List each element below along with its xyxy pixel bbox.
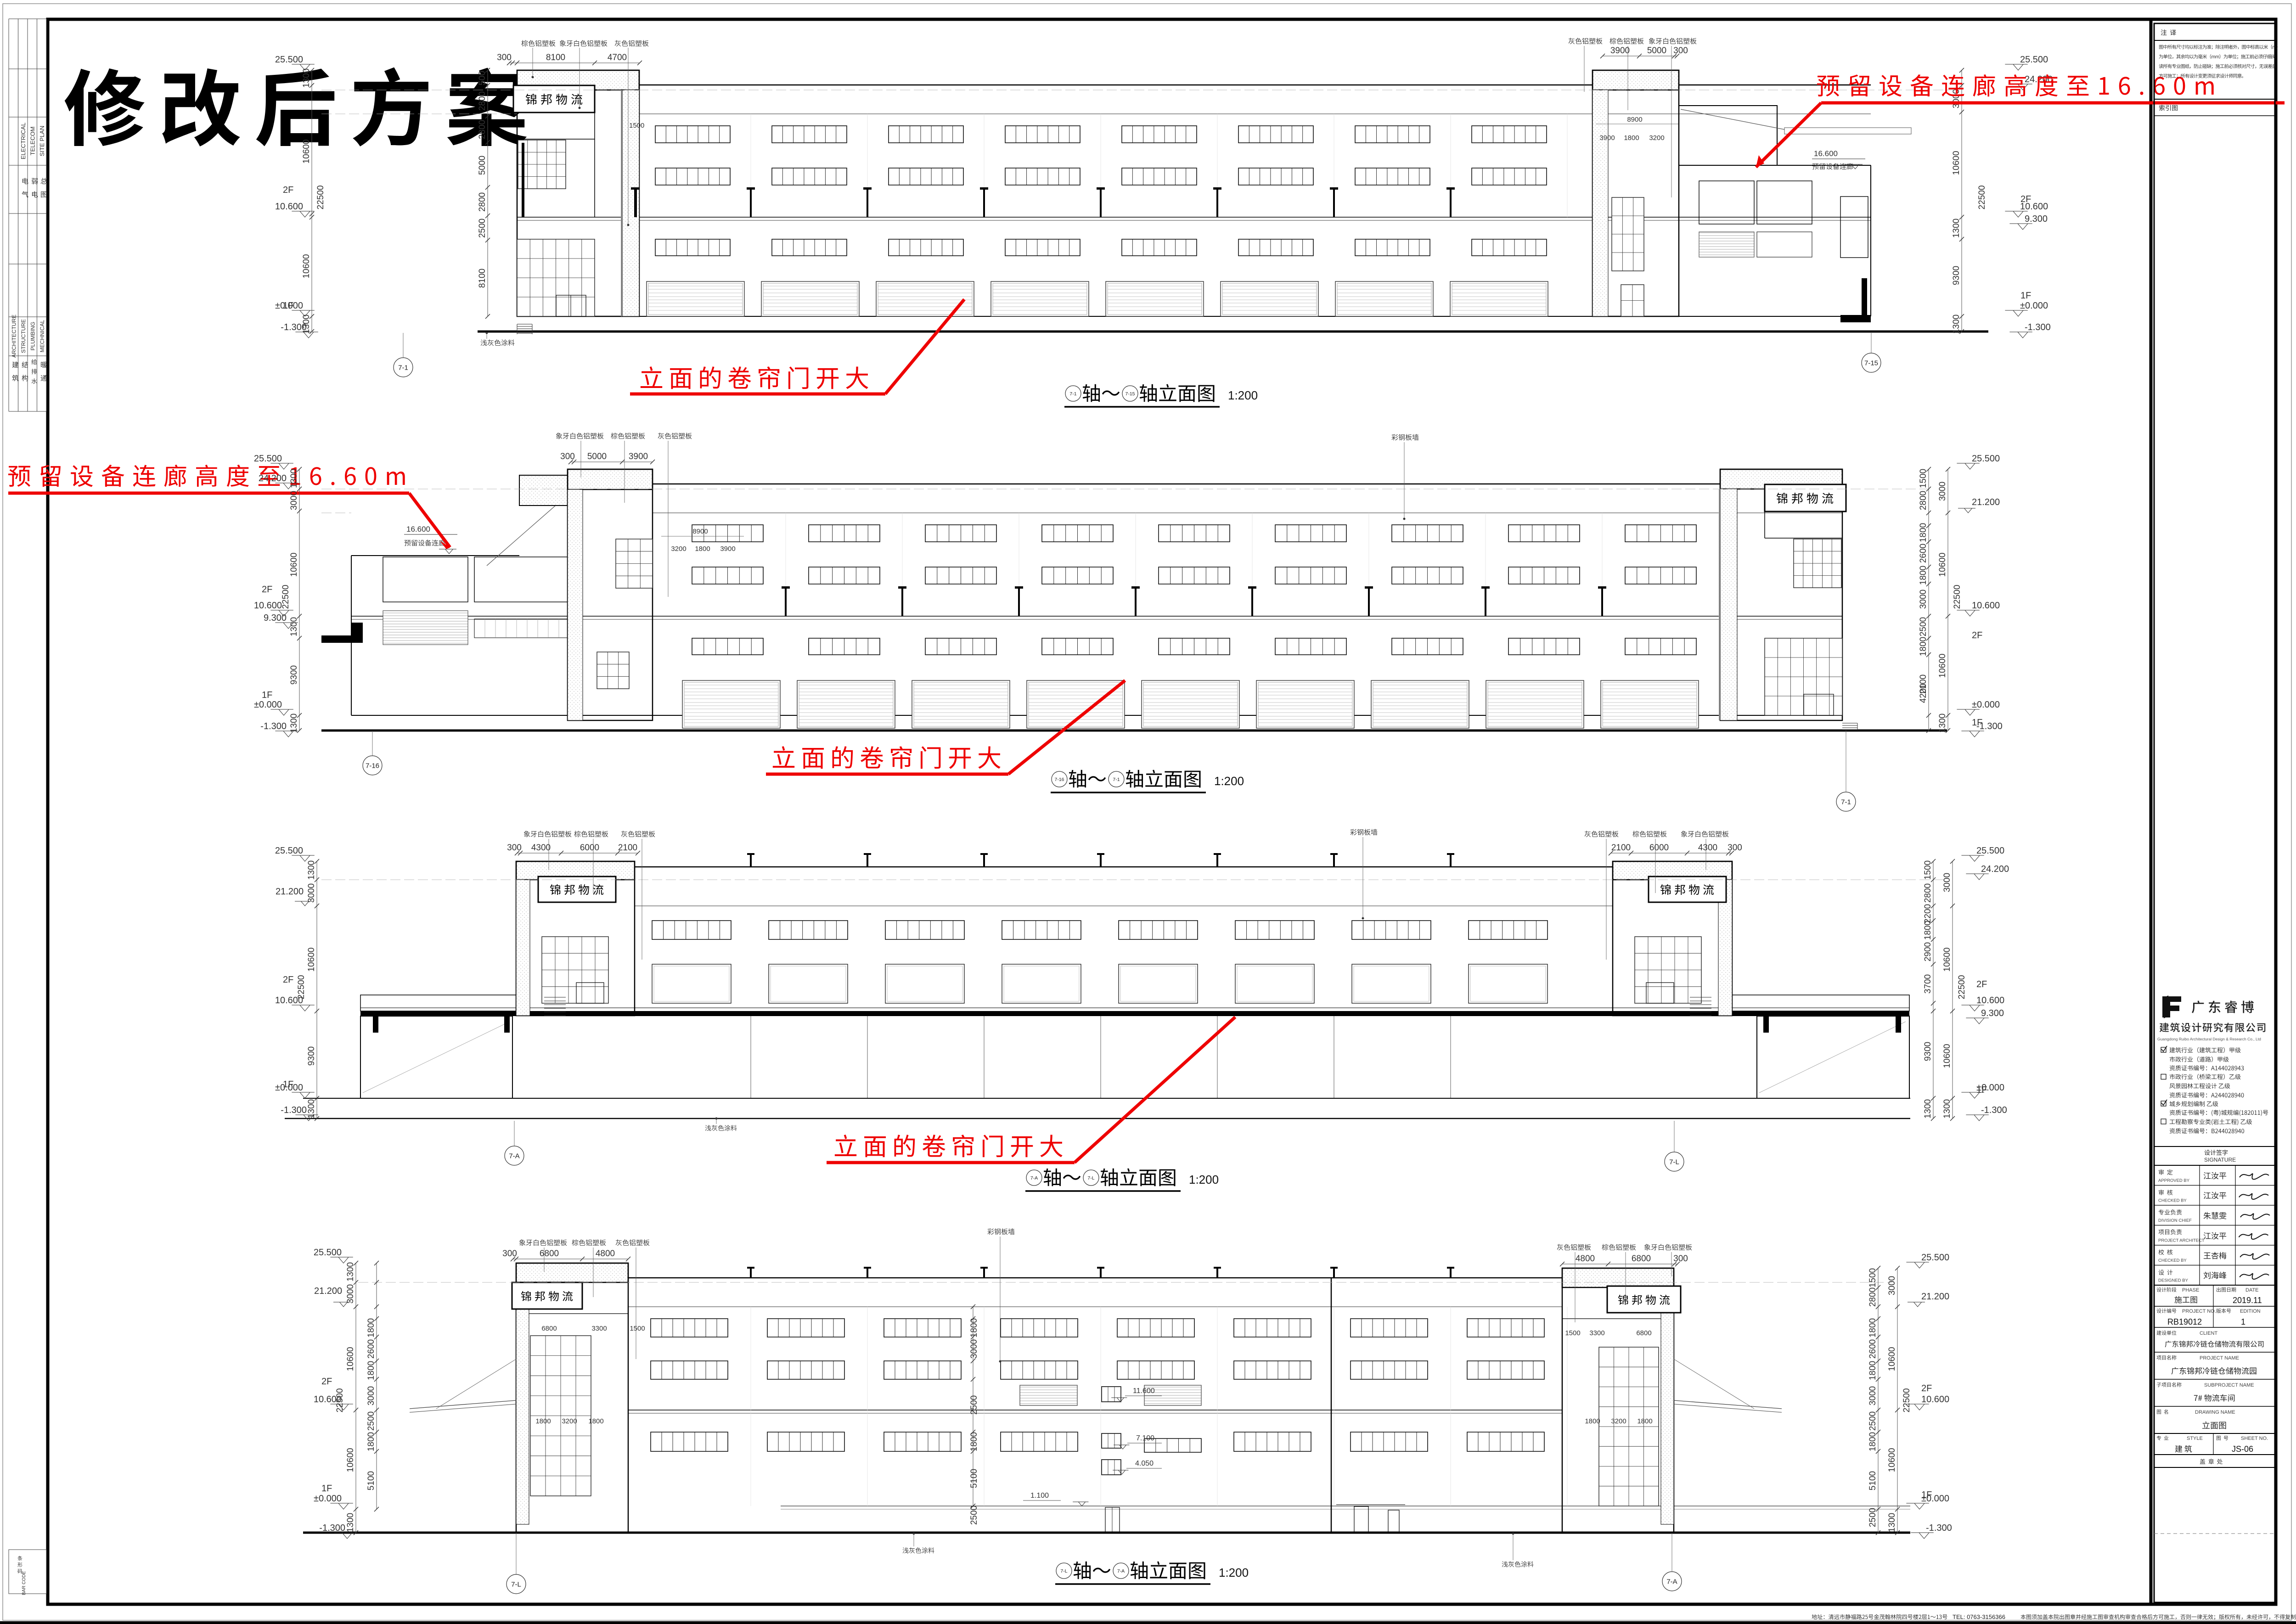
svg-text:SIGNATURE: SIGNATURE xyxy=(2204,1157,2236,1163)
svg-text:MECHNICAL: MECHNICAL xyxy=(39,320,45,352)
svg-text:SUBPROJECT NAME: SUBPROJECT NAME xyxy=(2204,1382,2254,1388)
svg-text:-1.300: -1.300 xyxy=(260,721,287,731)
svg-text:1800: 1800 xyxy=(366,1432,376,1451)
svg-text:7-16: 7-16 xyxy=(1054,777,1064,782)
svg-text:1800: 1800 xyxy=(1624,134,1639,142)
svg-text:10600: 10600 xyxy=(302,140,311,164)
svg-text:300: 300 xyxy=(560,452,575,461)
svg-text:3300: 3300 xyxy=(591,1325,607,1332)
svg-text:7-A: 7-A xyxy=(1117,1568,1125,1574)
svg-text:-1.300: -1.300 xyxy=(281,1105,307,1115)
svg-text:7-1: 7-1 xyxy=(398,364,408,371)
svg-text:-1.300: -1.300 xyxy=(1976,721,2003,731)
svg-text:10600: 10600 xyxy=(1942,948,1952,972)
svg-text:2F: 2F xyxy=(1976,979,1987,989)
svg-text:9300: 9300 xyxy=(289,665,299,685)
svg-text:1800: 1800 xyxy=(695,545,710,553)
svg-text:10600: 10600 xyxy=(1938,553,1947,577)
svg-text:3000: 3000 xyxy=(1919,590,1928,609)
svg-text:2100: 2100 xyxy=(1611,843,1631,853)
svg-text:3000: 3000 xyxy=(307,883,316,903)
svg-text:2800: 2800 xyxy=(1868,1287,1878,1307)
svg-text:EDITION: EDITION xyxy=(2240,1309,2261,1314)
svg-text:1300: 1300 xyxy=(1938,714,1947,733)
svg-text:3900: 3900 xyxy=(720,545,735,553)
svg-text:9.300: 9.300 xyxy=(2025,214,2048,224)
svg-text:2500: 2500 xyxy=(1919,617,1928,636)
svg-text:SHEET NO.: SHEET NO. xyxy=(2241,1436,2268,1441)
svg-text:7-L: 7-L xyxy=(1060,1568,1067,1574)
svg-text:-1.300: -1.300 xyxy=(1981,1105,2007,1115)
svg-text:1:200: 1:200 xyxy=(1189,1173,1219,1186)
svg-text:1800: 1800 xyxy=(1637,1417,1652,1425)
svg-text:5100: 5100 xyxy=(969,1469,979,1488)
svg-text:±0.000: ±0.000 xyxy=(275,301,303,311)
svg-text:±0.000: ±0.000 xyxy=(1921,1494,1949,1504)
svg-text:22500: 22500 xyxy=(1902,1388,1912,1413)
svg-text:25.500: 25.500 xyxy=(2020,55,2048,65)
svg-text:1300: 1300 xyxy=(1952,315,1961,334)
svg-text:300: 300 xyxy=(1728,843,1742,853)
svg-text:1300: 1300 xyxy=(1923,1099,1933,1118)
svg-text:1500: 1500 xyxy=(1923,860,1933,880)
svg-text:1800: 1800 xyxy=(969,1432,979,1451)
svg-text:4800: 4800 xyxy=(1576,1254,1595,1264)
svg-text:ELECTRICAL: ELECTRICAL xyxy=(20,123,27,159)
svg-text:CHECKED BY: CHECKED BY xyxy=(2158,1258,2187,1263)
svg-text:-1.300: -1.300 xyxy=(1926,1523,1952,1533)
svg-text:4300: 4300 xyxy=(531,843,551,853)
svg-text:1:200: 1:200 xyxy=(1214,774,1244,788)
svg-text:25.500: 25.500 xyxy=(275,846,303,856)
svg-text:2100: 2100 xyxy=(618,843,637,853)
svg-text:1300: 1300 xyxy=(1887,1513,1897,1532)
svg-text:3700: 3700 xyxy=(1923,974,1933,994)
svg-text:1300: 1300 xyxy=(289,617,299,636)
svg-text:10600: 10600 xyxy=(346,1347,355,1371)
svg-text:1500: 1500 xyxy=(629,122,644,129)
svg-text:21.200: 21.200 xyxy=(276,887,304,897)
svg-text:3000: 3000 xyxy=(1938,482,1947,501)
svg-text:7-16: 7-16 xyxy=(366,762,379,770)
svg-text:6800: 6800 xyxy=(1632,1254,1651,1264)
svg-text:25.500: 25.500 xyxy=(1921,1253,1949,1263)
svg-text:9300: 9300 xyxy=(1923,1042,1933,1061)
svg-text:2800: 2800 xyxy=(478,91,487,111)
svg-text:±0.000: ±0.000 xyxy=(275,1083,303,1093)
svg-text:3200: 3200 xyxy=(562,1417,577,1425)
svg-text:1300: 1300 xyxy=(1952,219,1961,238)
svg-text:1300: 1300 xyxy=(1942,1099,1952,1118)
svg-text:±0.000: ±0.000 xyxy=(314,1494,342,1504)
svg-text:21.200: 21.200 xyxy=(1972,497,2000,507)
svg-text:2F: 2F xyxy=(1972,630,1982,641)
svg-text:1300: 1300 xyxy=(289,469,299,488)
svg-text:7-L: 7-L xyxy=(1087,1175,1094,1181)
svg-text:4800: 4800 xyxy=(596,1249,615,1259)
svg-text:24.200: 24.200 xyxy=(259,473,287,483)
svg-text:7-A: 7-A xyxy=(1030,1175,1038,1181)
svg-text:4200: 4200 xyxy=(1919,684,1928,703)
svg-text:2500: 2500 xyxy=(478,219,487,238)
svg-text:1300: 1300 xyxy=(346,1262,355,1281)
svg-text:CLIENT: CLIENT xyxy=(2200,1331,2217,1336)
svg-text:10600: 10600 xyxy=(289,553,299,577)
svg-text:3000: 3000 xyxy=(346,1284,355,1304)
svg-text:3900: 3900 xyxy=(1599,134,1615,142)
svg-text:2019.11: 2019.11 xyxy=(2233,1296,2262,1305)
svg-text:PHASE: PHASE xyxy=(2182,1287,2199,1293)
svg-text:25.500: 25.500 xyxy=(254,454,282,464)
svg-text:10600: 10600 xyxy=(1887,1448,1897,1472)
svg-text:7-L: 7-L xyxy=(1669,1158,1679,1166)
svg-text:10600: 10600 xyxy=(1942,1044,1952,1068)
svg-text:1: 1 xyxy=(2241,1317,2245,1326)
svg-text:PROJECT NO.: PROJECT NO. xyxy=(2182,1309,2216,1314)
svg-text:10600: 10600 xyxy=(1952,151,1961,175)
svg-text:10.600: 10.600 xyxy=(275,202,303,212)
svg-text:ARCHITECTURE: ARCHITECTURE xyxy=(11,315,17,358)
svg-text:3200: 3200 xyxy=(1649,134,1664,142)
svg-text:1300: 1300 xyxy=(302,68,311,88)
svg-text:300: 300 xyxy=(1673,1254,1688,1264)
svg-text:5100: 5100 xyxy=(1868,1471,1878,1490)
svg-text:±0.000: ±0.000 xyxy=(1976,1083,2004,1093)
svg-text:1F: 1F xyxy=(262,690,272,700)
svg-text:4300: 4300 xyxy=(1698,843,1717,853)
svg-text:1800: 1800 xyxy=(969,1318,979,1337)
svg-text:10.600: 10.600 xyxy=(1972,601,2000,611)
svg-text:TELECOM: TELECOM xyxy=(29,127,36,156)
svg-text:10600: 10600 xyxy=(1938,654,1947,678)
svg-text:300: 300 xyxy=(1673,46,1688,56)
svg-text:4.050: 4.050 xyxy=(1135,1460,1154,1467)
svg-text:25.500: 25.500 xyxy=(1976,846,2004,856)
svg-text:3900: 3900 xyxy=(1610,46,1630,56)
svg-text:7-15: 7-15 xyxy=(1864,359,1878,367)
svg-text:1300: 1300 xyxy=(307,860,316,880)
svg-text:PLUMBING: PLUMBING xyxy=(30,322,36,351)
svg-text:7-A: 7-A xyxy=(509,1152,519,1160)
svg-text:±0.000: ±0.000 xyxy=(1972,700,2000,710)
svg-text:2600: 2600 xyxy=(366,1339,376,1359)
svg-text:2800: 2800 xyxy=(478,120,487,139)
svg-text:1F: 1F xyxy=(2020,291,2031,301)
svg-text:1800: 1800 xyxy=(1868,1318,1878,1337)
svg-text:25.500: 25.500 xyxy=(314,1248,342,1258)
svg-text:3200: 3200 xyxy=(1611,1417,1626,1425)
svg-text:1800: 1800 xyxy=(1919,566,1928,585)
svg-text:22500: 22500 xyxy=(316,185,326,210)
svg-text:22500: 22500 xyxy=(335,1388,345,1413)
svg-text:22500: 22500 xyxy=(1977,185,1987,210)
svg-text:2600: 2600 xyxy=(1868,1339,1878,1359)
svg-text:7-1: 7-1 xyxy=(1113,777,1120,782)
svg-text:DESIGNED BY: DESIGNED BY xyxy=(2158,1278,2189,1283)
svg-text:5000: 5000 xyxy=(587,452,607,461)
svg-text:7-15: 7-15 xyxy=(1125,391,1135,397)
svg-text:10600: 10600 xyxy=(302,254,311,279)
svg-text:3300: 3300 xyxy=(1589,1329,1604,1337)
svg-text:10.600: 10.600 xyxy=(254,601,282,611)
svg-text:PROJECT ARCHITECT: PROJECT ARCHITECT xyxy=(2158,1238,2205,1243)
svg-text:2200: 2200 xyxy=(1923,904,1933,923)
svg-text:7.100: 7.100 xyxy=(1136,1434,1154,1442)
svg-text:1800: 1800 xyxy=(588,1417,603,1425)
svg-text:8900: 8900 xyxy=(1627,116,1642,124)
svg-text:1500: 1500 xyxy=(1919,469,1928,488)
svg-text:6800: 6800 xyxy=(541,1325,557,1332)
svg-text:1800: 1800 xyxy=(1923,921,1933,940)
svg-text:6800: 6800 xyxy=(540,1249,559,1259)
svg-text:6000: 6000 xyxy=(1649,843,1669,853)
svg-text:-1.300: -1.300 xyxy=(319,1523,345,1533)
svg-text:PROJECT NAME: PROJECT NAME xyxy=(2200,1355,2239,1361)
svg-text:10600: 10600 xyxy=(1887,1347,1897,1371)
svg-text:500: 500 xyxy=(478,71,487,85)
svg-text:9.300: 9.300 xyxy=(1981,1008,2004,1018)
svg-text:22500: 22500 xyxy=(297,975,306,1000)
svg-text:300: 300 xyxy=(502,1249,517,1259)
svg-text:2800: 2800 xyxy=(1923,883,1933,903)
svg-text:1300: 1300 xyxy=(289,714,299,733)
svg-text:1800: 1800 xyxy=(366,1318,376,1337)
svg-text:1800: 1800 xyxy=(1585,1417,1600,1425)
svg-text:2F: 2F xyxy=(283,975,293,985)
svg-text:9300: 9300 xyxy=(1952,266,1961,285)
svg-text:BAR CODE: BAR CODE xyxy=(22,1571,27,1596)
svg-text:3200: 3200 xyxy=(671,545,686,553)
svg-text:7-L: 7-L xyxy=(511,1580,521,1588)
svg-text:2500: 2500 xyxy=(1868,1411,1878,1431)
svg-text:CHECKED BY: CHECKED BY xyxy=(2158,1198,2187,1203)
svg-text:1800: 1800 xyxy=(1919,523,1928,542)
svg-text:2F: 2F xyxy=(1921,1383,1932,1394)
svg-text:11.600: 11.600 xyxy=(1133,1387,1155,1395)
svg-text:2500: 2500 xyxy=(366,1411,376,1431)
svg-text:10.600: 10.600 xyxy=(1921,1394,1949,1405)
svg-text:1300: 1300 xyxy=(346,1513,355,1532)
svg-text:16.600: 16.600 xyxy=(406,525,430,534)
svg-text:±0.000: ±0.000 xyxy=(2020,301,2048,311)
svg-text:3000: 3000 xyxy=(1887,1276,1897,1295)
svg-text:2F: 2F xyxy=(283,185,293,195)
svg-text:3000: 3000 xyxy=(1942,873,1952,892)
svg-text:5100: 5100 xyxy=(366,1471,376,1490)
svg-text:STRUCTURE: STRUCTURE xyxy=(20,319,27,353)
svg-text:2600: 2600 xyxy=(1919,544,1928,563)
svg-text:9300: 9300 xyxy=(307,1046,316,1066)
svg-text:SITE PLAN: SITE PLAN xyxy=(39,126,45,156)
svg-text:1800: 1800 xyxy=(1868,1432,1878,1451)
svg-text:1800: 1800 xyxy=(1919,637,1928,656)
svg-text:2F: 2F xyxy=(262,584,272,595)
svg-text:6000: 6000 xyxy=(580,843,599,853)
svg-text:2500: 2500 xyxy=(969,1506,979,1525)
svg-text:1F: 1F xyxy=(321,1484,332,1494)
svg-text:10.600: 10.600 xyxy=(1976,995,2004,1006)
svg-text:5000: 5000 xyxy=(478,156,487,175)
svg-text:24.200: 24.200 xyxy=(1981,864,2009,874)
svg-text:1800: 1800 xyxy=(366,1361,376,1380)
svg-text:TEL: 0763-3156366: TEL: 0763-3156366 xyxy=(1953,1613,2005,1620)
svg-text:STYLE: STYLE xyxy=(2187,1436,2203,1441)
svg-text:22500: 22500 xyxy=(1957,975,1967,1000)
svg-text:21.200: 21.200 xyxy=(1921,1292,1949,1302)
svg-text:22500: 22500 xyxy=(281,585,291,609)
svg-text:JS-06: JS-06 xyxy=(2232,1444,2253,1454)
svg-text:7-1: 7-1 xyxy=(1841,798,1851,806)
svg-text:1:200: 1:200 xyxy=(1219,1566,1249,1579)
svg-text:2500: 2500 xyxy=(1868,1508,1878,1527)
svg-text:8100: 8100 xyxy=(546,53,565,62)
svg-text:8900: 8900 xyxy=(692,528,708,535)
svg-text:DATE: DATE xyxy=(2245,1287,2259,1293)
svg-text:Guangdong Ruibo Architectural: Guangdong Ruibo Architectural Design & R… xyxy=(2157,1037,2261,1041)
svg-text:1500: 1500 xyxy=(1868,1268,1878,1287)
svg-text:1:200: 1:200 xyxy=(1228,388,1258,402)
svg-text:3900: 3900 xyxy=(629,452,648,461)
svg-text:10.600: 10.600 xyxy=(2020,202,2048,212)
svg-text:25.500: 25.500 xyxy=(1972,454,2000,464)
svg-text:1.100: 1.100 xyxy=(1030,1492,1049,1500)
svg-text:300: 300 xyxy=(507,843,522,853)
svg-text:APPROVED BY: APPROVED BY xyxy=(2158,1178,2190,1183)
svg-text:4700: 4700 xyxy=(608,53,627,62)
svg-text:1300: 1300 xyxy=(302,315,311,334)
svg-text:22500: 22500 xyxy=(1953,585,1962,609)
svg-text:DIVISION CHIEF: DIVISION CHIEF xyxy=(2158,1218,2192,1223)
svg-text:7-1: 7-1 xyxy=(1069,391,1076,397)
svg-text:2800: 2800 xyxy=(478,192,487,212)
svg-text:25.500: 25.500 xyxy=(275,55,303,65)
svg-text:7-A: 7-A xyxy=(1666,1578,1677,1585)
svg-text:2F: 2F xyxy=(321,1377,332,1387)
svg-text:DRAWING NAME: DRAWING NAME xyxy=(2195,1410,2235,1415)
svg-text:1800: 1800 xyxy=(1868,1361,1878,1380)
svg-text:2500: 2500 xyxy=(969,1395,979,1415)
svg-text:±0.000: ±0.000 xyxy=(254,700,282,710)
svg-text:3000: 3000 xyxy=(366,1386,376,1405)
svg-text:16.600: 16.600 xyxy=(1814,149,1838,158)
svg-text:6800: 6800 xyxy=(1636,1329,1651,1337)
svg-text:8100: 8100 xyxy=(478,269,487,288)
svg-text:3000: 3000 xyxy=(969,1339,979,1359)
svg-text:21.200: 21.200 xyxy=(314,1286,342,1296)
svg-text:-1.300: -1.300 xyxy=(2025,322,2051,332)
svg-text:9.300: 9.300 xyxy=(264,613,287,623)
svg-text:10600: 10600 xyxy=(307,948,316,972)
svg-text:2800: 2800 xyxy=(1919,491,1928,510)
svg-text:3000: 3000 xyxy=(1868,1386,1878,1405)
svg-text:300: 300 xyxy=(497,53,512,62)
svg-text:1500: 1500 xyxy=(630,1325,645,1332)
svg-text:5000: 5000 xyxy=(1647,46,1666,56)
svg-text:1300: 1300 xyxy=(307,1099,316,1118)
svg-text:2900: 2900 xyxy=(1923,942,1933,961)
svg-text:1500: 1500 xyxy=(1565,1329,1580,1337)
svg-text:1800: 1800 xyxy=(535,1417,551,1425)
svg-text:3000: 3000 xyxy=(289,491,299,510)
svg-text:10600: 10600 xyxy=(346,1448,355,1472)
svg-text:RB19012: RB19012 xyxy=(2167,1317,2202,1326)
